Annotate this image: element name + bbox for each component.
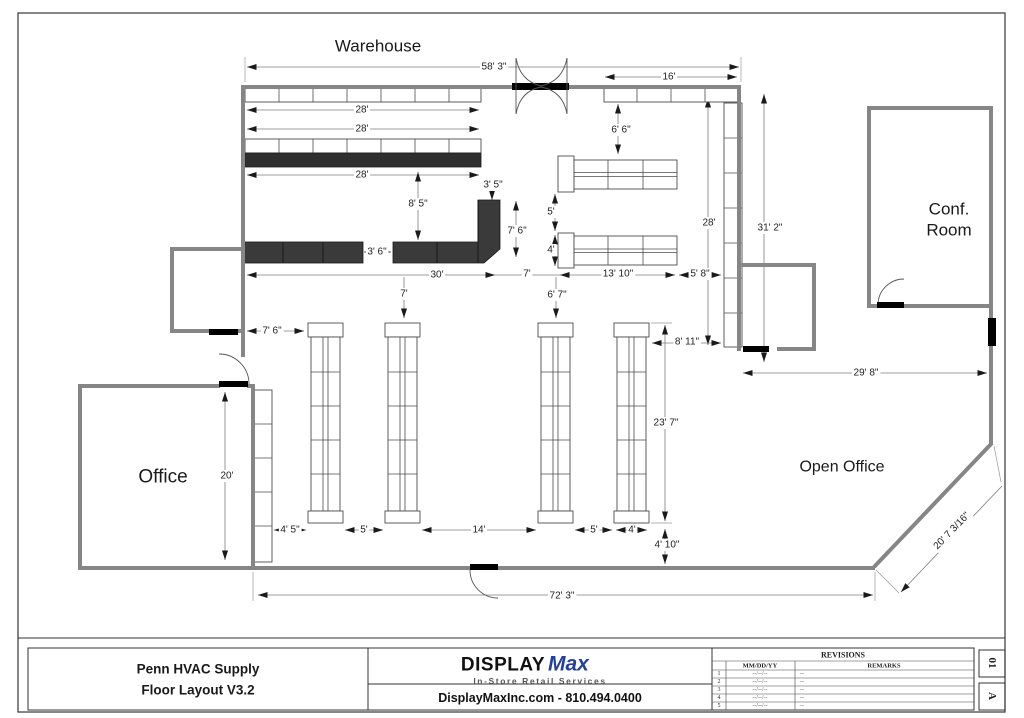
- rev-date: --/--/--: [752, 679, 767, 685]
- mid-gondola-2: [558, 233, 677, 268]
- revisions-title: REVISIONS: [821, 651, 866, 660]
- office-door: [219, 354, 249, 387]
- dim-counter-to-floor-gondola: 7': [400, 289, 408, 300]
- revisions-col-remarks: REMARKS: [867, 663, 901, 670]
- vestibule-walls: [741, 263, 816, 349]
- dim-gondola-to-wall: 4' 10": [655, 540, 680, 551]
- dim-mid-to-side-shelf: 5' 8": [690, 269, 710, 280]
- office-label: Office: [138, 467, 187, 488]
- walls: [78, 85, 992, 570]
- warehouse-double-door: [512, 58, 569, 114]
- dim-top-right-run: 16': [662, 72, 675, 83]
- project-title-line1: Penn HVAC Supply: [137, 662, 260, 677]
- mid-gondola-1: [558, 156, 677, 192]
- conf-room-door: [877, 279, 904, 308]
- rev-num: 1: [718, 671, 721, 677]
- floor-plan-canvas: 58' 3" 16' 28' 28' 28' 6' 6" 3' 5" 8' 5"…: [0, 0, 1024, 718]
- rev-remark: --: [800, 695, 804, 701]
- rev-remark: --: [800, 671, 804, 677]
- dim-counter-return-width: 3' 5": [483, 180, 503, 191]
- dim-shelf-row-mid: 28': [355, 124, 368, 135]
- receiving-room-door: [209, 329, 238, 335]
- rev-num: 4: [718, 695, 721, 701]
- rev-num: 5: [718, 703, 721, 709]
- receiving-room-walls: [172, 247, 241, 333]
- dim-room-to-wall: 29' 8": [854, 368, 879, 379]
- project-title-line2: Floor Layout V3.2: [141, 683, 254, 698]
- conf-room-label-line1: Conf.: [929, 200, 970, 219]
- rev-num: 3: [718, 687, 721, 693]
- open-office-label: Open Office: [799, 459, 884, 476]
- dim-gondola4-to-room: 8' 11": [675, 337, 700, 348]
- sheet-border: [18, 13, 1005, 712]
- shelf-row-middle: [245, 139, 481, 167]
- dim-gap-g1-g2: 5': [360, 525, 368, 536]
- revision-row: 3 --/--/-- --: [718, 687, 805, 693]
- dim-gondola4-width: 4': [628, 525, 636, 536]
- revisions-table: REVISIONS MM/DD/YY REMARKS 1 --/--/-- --…: [712, 651, 974, 711]
- dim-mid-gondola-len: 13' 10": [603, 269, 634, 280]
- rev-date: --/--/--: [752, 687, 767, 693]
- revision-row: 1 --/--/-- --: [718, 671, 805, 677]
- diagonal-wall: [874, 443, 992, 567]
- revision-row: 4 --/--/-- --: [718, 695, 805, 701]
- logo-max-text: Max: [548, 653, 590, 676]
- dim-overall-top: 58' 3": [482, 62, 507, 73]
- rev-remark: --: [800, 679, 804, 685]
- dim-counter-return-len: 7' 6": [507, 226, 527, 237]
- floor-gondola-3: [538, 323, 573, 523]
- logo-display-text: DISPLAY: [461, 655, 545, 676]
- dim-side-height: 31' 2": [758, 223, 783, 234]
- bottom-entry-door: [470, 564, 498, 598]
- shelf-top-right: [604, 88, 739, 102]
- sheet-id-block: 01 A: [979, 650, 1005, 710]
- rev-remark: --: [800, 703, 804, 709]
- title-block: Penn HVAC Supply Floor Layout V3.2 DISPL…: [28, 648, 1005, 710]
- conf-room-label-line2: Room: [926, 221, 971, 240]
- rev-date: --/--/--: [752, 703, 767, 709]
- dim-overall-bottom: 72' 3": [550, 591, 575, 602]
- revision-row: 2 --/--/-- --: [718, 679, 805, 685]
- floor-gondola-2: [385, 323, 420, 523]
- dim-gap-g2-g3: 14': [472, 525, 485, 536]
- dim-counter-to-mid: 7': [523, 269, 531, 280]
- dim-mid-gondola-depth: 4': [547, 245, 555, 256]
- vestibule-door: [743, 346, 769, 352]
- dim-mid-to-floor-gondola: 6' 7": [547, 290, 567, 301]
- sheet-letter: A: [986, 692, 998, 700]
- shelf-office-strip: [254, 390, 272, 562]
- dim-office-depth: 20': [220, 471, 233, 482]
- dim-floor-gondola-len: 23' 7": [654, 418, 679, 429]
- floor-gondola-1: [308, 323, 343, 523]
- dim-shelf-to-counter: 8' 5": [408, 199, 428, 210]
- contact-line: DisplayMaxInc.com - 810.494.0400: [438, 691, 642, 705]
- rev-date: --/--/--: [752, 695, 767, 701]
- dim-counter-run: 30': [430, 270, 443, 281]
- dim-counter-gap: 3' 6": [367, 247, 387, 258]
- shelf-row-top: [245, 88, 481, 102]
- rev-date: --/--/--: [752, 671, 767, 677]
- dim-side-shelf-run: 28': [702, 218, 715, 229]
- floor-gondolas: [308, 323, 649, 523]
- counter-row: [243, 242, 363, 263]
- displaymax-logo: DISPLAY Max In-Store Retail Services: [461, 653, 607, 687]
- dim-shelf-to-gondola: 6' 6": [611, 125, 631, 136]
- logo-tagline: In-Store Retail Services: [473, 676, 606, 686]
- dim-shelf-row-bottom: 28': [355, 170, 368, 181]
- warehouse-label: Warehouse: [335, 37, 421, 56]
- sheet-number: 01: [986, 658, 998, 669]
- mid-gondolas: [558, 156, 677, 268]
- revision-row: 5 --/--/-- --: [718, 703, 805, 709]
- dim-mid-gondola-gap: 5': [547, 207, 555, 218]
- floor-gondola-4: [614, 323, 649, 523]
- dim-strip-to-gondola1: 4' 5": [280, 525, 300, 536]
- dim-gap-g3-g4: 5': [590, 525, 598, 536]
- dim-diagonal-wall: 20' 7 3/16": [932, 510, 973, 552]
- right-wall-door: [988, 318, 996, 346]
- rev-remark: --: [800, 687, 804, 693]
- dim-wall-to-gondola1: 7' 6": [262, 326, 282, 337]
- revisions-col-date: MM/DD/YY: [743, 663, 778, 670]
- dim-shelf-row-top: 28': [355, 105, 368, 116]
- rev-num: 2: [718, 679, 721, 685]
